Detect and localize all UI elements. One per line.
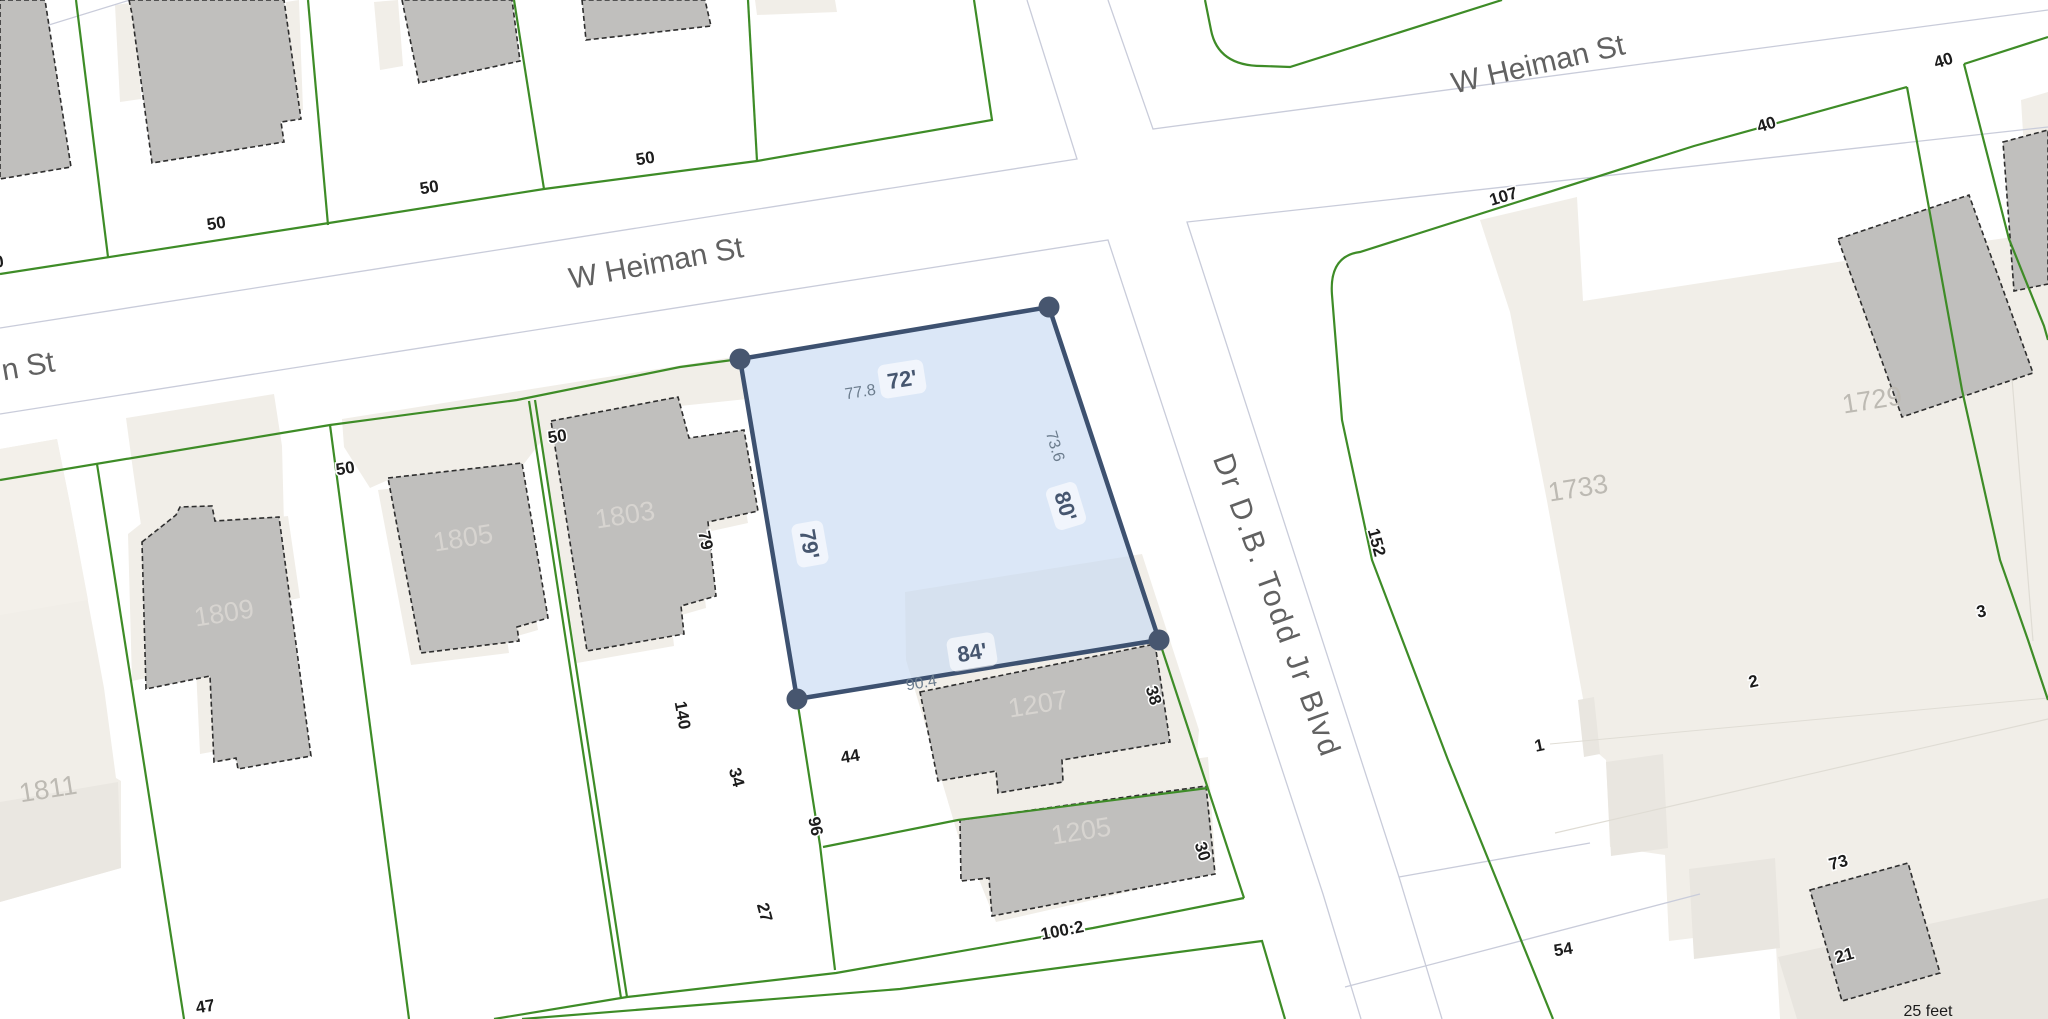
svg-text:72': 72' (885, 365, 918, 394)
svg-text:50: 50 (334, 458, 356, 480)
svg-text:44: 44 (839, 746, 861, 768)
svg-text:50: 50 (418, 177, 440, 199)
svg-text:50: 50 (205, 213, 227, 235)
svg-text:79: 79 (694, 529, 717, 551)
svg-text:54: 54 (1552, 939, 1574, 961)
svg-text:50: 50 (546, 426, 568, 448)
svg-text:79': 79' (795, 527, 825, 561)
svg-text:96: 96 (804, 815, 827, 837)
svg-text:47: 47 (194, 996, 216, 1018)
svg-text:84': 84' (955, 638, 988, 667)
svg-text:50: 50 (634, 148, 656, 170)
svg-text:25 feet: 25 feet (1904, 1003, 1953, 1019)
